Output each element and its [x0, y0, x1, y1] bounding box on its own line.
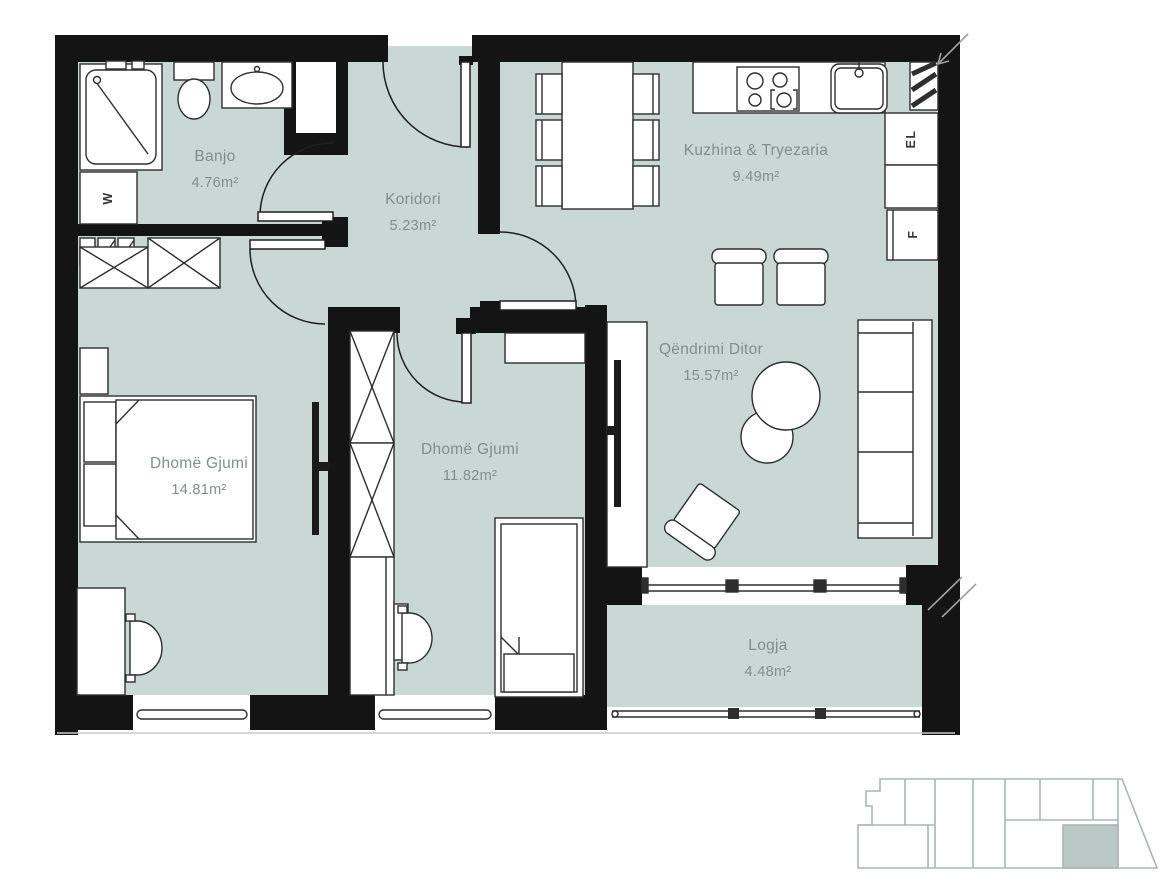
room-area: 14.81m²: [150, 477, 248, 503]
shower: [80, 61, 162, 170]
shelf: [505, 333, 585, 363]
wardrobe: [350, 331, 394, 695]
bathroom-niche: [296, 62, 336, 133]
hatched-cabinet: [910, 62, 938, 110]
room-label-bedroom-2: Dhomë Gjumi 11.82m²: [421, 437, 519, 489]
room-name: Banjo: [192, 144, 239, 170]
key-plan-highlighted-unit: [1063, 825, 1118, 868]
room-label-corridor: Koridori 5.23m²: [385, 187, 441, 239]
tv-cabinet: [607, 322, 647, 567]
room-name: Dhomë Gjumi: [150, 451, 248, 477]
room-label-bedroom-1: Dhomë Gjumi 14.81m²: [150, 451, 248, 503]
desk: [77, 588, 125, 695]
room-label-bathroom: Banjo 4.76m²: [192, 144, 239, 196]
cabinet: [885, 165, 938, 208]
armchair: [712, 249, 766, 305]
room-name: Dhomë Gjumi: [421, 437, 519, 463]
stove: [737, 67, 799, 111]
floor-plan-drawing: [0, 0, 1170, 878]
room-area: 15.57m²: [659, 363, 763, 389]
room-label-loggia: Logja 4.48m²: [745, 633, 792, 685]
room-name: Qëndrimi Ditor: [659, 337, 763, 363]
nightstand: [80, 348, 108, 394]
key-plan: [858, 779, 1157, 868]
room-label-living-room: Qëndrimi Ditor 15.57m²: [659, 337, 763, 389]
sofa: [858, 320, 932, 538]
kitchen-sink: [831, 62, 887, 113]
room-name: Kuzhina & Tryezaria: [684, 138, 828, 164]
room-area: 5.23m²: [385, 213, 441, 239]
bathroom-sink: [222, 62, 292, 108]
single-bed: [495, 518, 583, 697]
room-area: 4.48m²: [745, 659, 792, 685]
electrical-cabinet-label: EL: [904, 130, 918, 149]
floor-plan-page: Banjo 4.76m² Koridori 5.23m² Kuzhina & T…: [0, 0, 1170, 878]
armchair: [774, 249, 828, 305]
room-area: 4.76m²: [192, 170, 239, 196]
room-name: Logja: [745, 633, 792, 659]
dining-table: [562, 62, 633, 209]
room-name: Koridori: [385, 187, 441, 213]
washer-label: W: [101, 191, 115, 204]
room-label-kitchen-dining: Kuzhina & Tryezaria 9.49m²: [684, 138, 828, 190]
room-area: 11.82m²: [421, 463, 519, 489]
room-area: 9.49m²: [684, 164, 828, 190]
fridge-label: F: [906, 229, 920, 238]
